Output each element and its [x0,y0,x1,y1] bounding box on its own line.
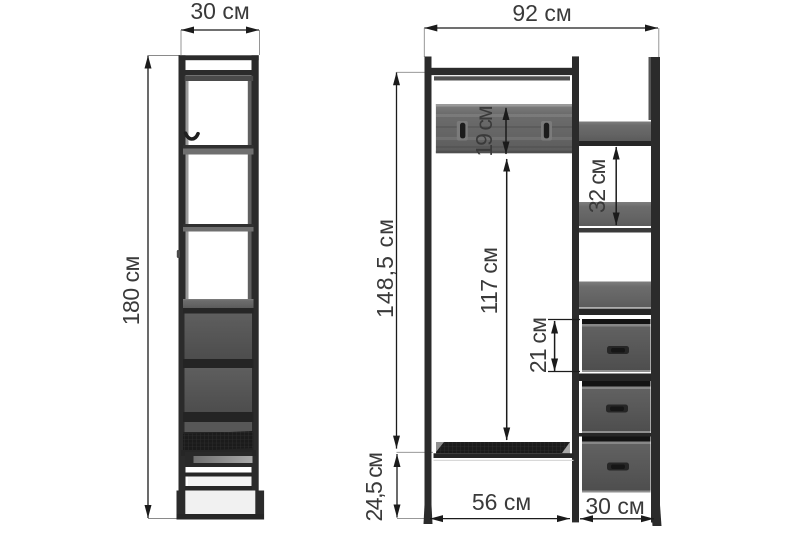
svg-text:19 см: 19 см [471,106,497,156]
svg-text:148,5 см: 148,5 см [372,218,398,318]
svg-text:30 см: 30 см [585,493,644,519]
svg-text:32 см: 32 см [584,159,610,213]
svg-text:117 см: 117 см [476,248,502,315]
svg-text:30 см: 30 см [190,0,249,24]
svg-text:21 см: 21 см [525,318,551,373]
svg-text:180 см: 180 см [118,256,144,325]
svg-text:56 см: 56 см [472,489,531,515]
svg-text:92 см: 92 см [512,0,571,26]
svg-text:24,5 см: 24,5 см [361,453,387,522]
